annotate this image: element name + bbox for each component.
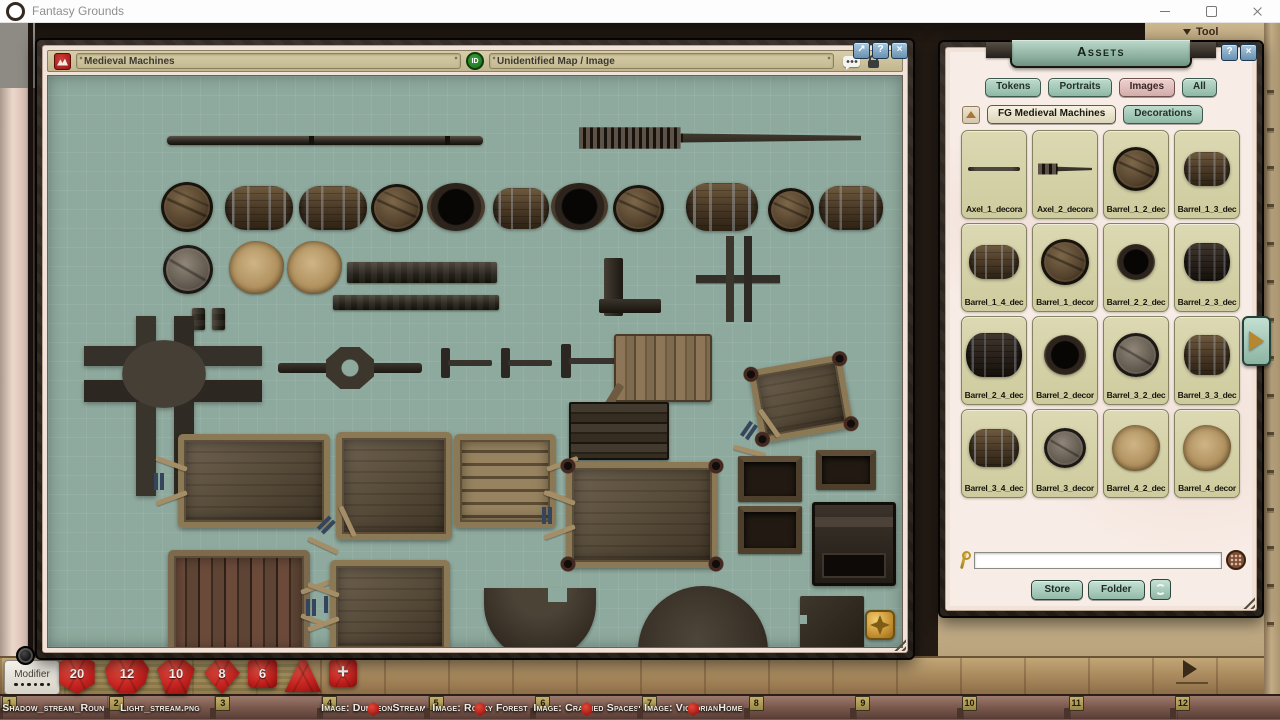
taskbar-slot[interactable]: 7Image: VictorianHome [640, 696, 747, 720]
asset-item[interactable]: Barrel_3_decor [1032, 409, 1098, 498]
slot-number: 10 [962, 696, 977, 711]
assets-window-inner: TokensPortraitsImagesAll FG Medieval Mac… [945, 47, 1257, 611]
asset-label: Barrel_2_3_dec [1178, 297, 1237, 308]
barrel-side-dark-thumbnail-icon [1184, 243, 1230, 281]
modifier-dot [40, 683, 44, 687]
image-window-icon [54, 53, 71, 70]
folder-button[interactable]: Folder [1088, 580, 1145, 600]
barrel-side-thumbnail-icon [1184, 335, 1230, 375]
compass-petal-icon [870, 621, 890, 629]
asset-item[interactable]: Barrel_2_2_dec [1103, 223, 1169, 312]
modifier-dot [27, 683, 31, 687]
modifier-reset-icon[interactable] [16, 646, 35, 665]
lock-icon[interactable] [868, 60, 879, 68]
help-button[interactable]: ? [872, 42, 889, 59]
taskbar-slot[interactable]: 4Image: DungeonStream [320, 696, 427, 720]
map-object-raft[interactable] [614, 334, 712, 402]
taskbar-slot: 9 [853, 696, 960, 720]
tool-menu-label: Tool [1196, 26, 1218, 38]
minimize-icon [1160, 11, 1170, 12]
map-object-barrel-covered[interactable] [229, 241, 284, 294]
map-window-buttons: ↗ ? × [853, 42, 908, 59]
map-object-semicircle-notch[interactable] [484, 588, 596, 648]
assets-body: TokensPortraitsImagesAll FG Medieval Mac… [950, 52, 1252, 606]
asset-item[interactable]: Barrel_2_decor [1032, 316, 1098, 405]
die-value: 10 [169, 666, 183, 681]
map-window: Medieval Machines ID Unidentified Map / … [35, 38, 915, 660]
map-window-inner: Medieval Machines ID Unidentified Map / … [42, 45, 908, 653]
asset-label: Axel_2_decora [1037, 204, 1093, 215]
barrel-top-thumbnail-icon [1113, 147, 1159, 191]
slot-number: 11 [1069, 696, 1084, 711]
map-object-crate-open[interactable] [738, 506, 802, 554]
window-controls [1142, 0, 1280, 22]
map-object-barrel-side[interactable] [225, 186, 293, 230]
asset-label: Barrel_1_2_dec [1107, 204, 1166, 215]
asset-grid: Axel_1_decoraAxel_2_decoraBarrel_1_2_dec… [961, 130, 1240, 498]
asset-item[interactable]: Barrel_1_4_dec [961, 223, 1027, 312]
map-object-barrel-side[interactable] [493, 188, 549, 229]
die-plus[interactable]: + [329, 659, 357, 687]
store-button[interactable]: Store [1031, 580, 1083, 600]
shortcut-label: Shadow_stream_Roun [0, 702, 107, 714]
map-object-cart-open[interactable] [178, 434, 330, 528]
map-object-barrel-top[interactable] [161, 182, 213, 232]
slot-number: 12 [1175, 696, 1190, 711]
barrel-covered-thumbnail-icon [1112, 425, 1160, 471]
taskbar-slot[interactable]: 1Shadow_stream_Roun [0, 696, 107, 720]
map-object-beam-h[interactable] [333, 295, 499, 310]
taskbar-slot: 10 [960, 696, 1067, 720]
help-button[interactable]: ? [1221, 44, 1238, 61]
modifier-dots [14, 683, 50, 687]
asset-label: Barrel_3_3_dec [1178, 390, 1237, 401]
map-object-barrel-top[interactable] [768, 188, 814, 232]
asset-item[interactable]: Axel_2_decora [1032, 130, 1098, 219]
taskbar-slot: 11 [1067, 696, 1174, 720]
modifier-dot [47, 683, 51, 687]
map-object-barrel-side[interactable] [819, 186, 883, 230]
map-object-cart-red[interactable] [168, 550, 310, 648]
taskbar-slot[interactable]: 5Image: Rocky Forest [427, 696, 534, 720]
assets-filters: FG Medieval MachinesDecorations [962, 105, 1203, 124]
cart-handle [303, 586, 337, 628]
map-object-crate-open[interactable] [816, 450, 876, 490]
next-page-button[interactable] [1242, 316, 1271, 366]
taskbar-slot[interactable]: 2Light_stream.png [107, 696, 214, 720]
map-object-chest[interactable] [812, 502, 896, 586]
asset-item[interactable]: Barrel_4_decor [1174, 409, 1240, 498]
die-value: 20 [70, 666, 84, 681]
map-object-disc[interactable] [638, 586, 768, 648]
assets-actions-row: Store Folder [950, 579, 1252, 600]
barrel-covered-thumbnail-icon [1183, 425, 1231, 471]
map-name-field[interactable]: Medieval Machines [76, 53, 461, 69]
chevron-down-icon [1183, 29, 1191, 35]
barrel-top-gray-thumbnail-icon [1113, 333, 1159, 377]
map-name-value: Medieval Machines [84, 56, 175, 67]
grid-dots-icon[interactable] [1226, 550, 1246, 570]
slot-number: 8 [749, 696, 764, 711]
app-logo-icon [6, 2, 25, 21]
close-icon [1252, 6, 1263, 17]
assets-window-buttons: ? × [1221, 44, 1257, 61]
asset-item[interactable]: Barrel_3_3_dec [1174, 316, 1240, 405]
map-object-cross-thin[interactable] [696, 236, 780, 322]
assets-title-ribbon: Assets [1010, 40, 1192, 68]
asset-item[interactable]: Barrel_1_2_dec [1103, 130, 1169, 219]
modifier-box[interactable]: Modifier [4, 660, 60, 695]
map-object-beam-h[interactable] [347, 262, 497, 283]
barrel-top-gray-thumbnail-icon [1044, 428, 1086, 468]
asset-item[interactable]: Barrel_1_3_dec [1174, 130, 1240, 219]
asset-label: Barrel_1_decor [1036, 297, 1094, 308]
barrel-open-thumbnail-icon [1044, 335, 1086, 375]
modifier-dot [14, 683, 18, 687]
desktop-parchment-area [938, 612, 1264, 660]
refresh-button[interactable] [1150, 579, 1171, 600]
cart-handle [539, 494, 573, 536]
close-window-button[interactable]: × [891, 42, 908, 59]
filter-buttons: FG Medieval MachinesDecorations [987, 105, 1203, 124]
asset-item[interactable]: Barrel_1_decor [1032, 223, 1098, 312]
id-badge: ID [466, 52, 484, 70]
map-object-axel2[interactable] [579, 124, 861, 152]
maximize-window-button[interactable]: ↗ [853, 42, 870, 59]
close-button[interactable] [1234, 0, 1280, 22]
asset-item[interactable]: Barrel_3_4_dec [961, 409, 1027, 498]
close-window-button[interactable]: × [1240, 44, 1257, 61]
asset-item[interactable]: Barrel_4_2_dec [1103, 409, 1169, 498]
map-object-cart-wheels[interactable] [748, 354, 853, 443]
minimize-button[interactable] [1142, 0, 1188, 22]
map-object-cart-open[interactable] [336, 432, 452, 540]
map-object-cart-wheels[interactable] [566, 462, 718, 568]
die-value: 6 [259, 666, 266, 681]
asset-label: Barrel_2_decor [1036, 390, 1094, 401]
sidebar-expand-arrow[interactable] [1183, 660, 1197, 678]
map-canvas[interactable] [47, 75, 903, 648]
taskbar-slot[interactable]: 6Image: Crashed Spacesh [533, 696, 640, 720]
restore-icon [1206, 6, 1217, 17]
map-object-t-tool[interactable] [440, 348, 492, 378]
barrel-side-dark-thumbnail-icon [966, 333, 1022, 377]
tab-tokens[interactable]: Tokens [985, 78, 1041, 97]
collapse-arrow-button[interactable] [962, 106, 980, 124]
barrel-open-thumbnail-icon [1117, 244, 1155, 280]
slot-number: 3 [215, 696, 230, 711]
asset-label: Barrel_3_decor [1036, 483, 1094, 494]
asset-label: Barrel_4_decor [1178, 483, 1236, 494]
sidebar-arrow-underline [1176, 682, 1208, 684]
app-title: Fantasy Grounds [32, 4, 124, 18]
os-titlebar: Fantasy Grounds [0, 0, 1280, 23]
map-object-barrel-covered[interactable] [287, 241, 342, 294]
restore-button[interactable] [1188, 0, 1234, 22]
shortcut-label: Light_stream.png [107, 702, 214, 714]
asset-label: Barrel_4_2_dec [1107, 483, 1166, 494]
cart-handle [151, 460, 185, 502]
map-object-cart-open[interactable] [330, 560, 450, 648]
asset-search-input[interactable] [974, 552, 1222, 569]
modifier-dot [34, 683, 38, 687]
taskbar-slot: 12 [1173, 696, 1280, 720]
search-needle-icon [956, 551, 970, 570]
pan-compass-button[interactable] [865, 610, 895, 640]
map-object-rod[interactable] [167, 136, 483, 145]
barrel-side-thumbnail-icon [969, 245, 1019, 279]
map-type-field[interactable]: Unidentified Map / Image [489, 53, 834, 69]
map-object-barrel-side[interactable] [686, 183, 758, 231]
desktop-left-edge [0, 22, 35, 696]
asset-item[interactable]: Barrel_2_3_dec [1174, 223, 1240, 312]
asset-search-row [956, 550, 1246, 570]
map-object-barrel-side[interactable] [299, 186, 367, 230]
fantasy-grounds-app: Fantasy Grounds Tool Modifier 20121086+ … [0, 0, 1280, 720]
map-object-barrel-open[interactable] [551, 183, 608, 230]
map-object-hub-rod[interactable] [278, 348, 422, 388]
tab-portraits[interactable]: Portraits [1048, 78, 1111, 97]
asset-item[interactable]: Axel_1_decora [961, 130, 1027, 219]
map-object-barrel-top[interactable] [371, 184, 423, 232]
asset-label: Barrel_1_4_dec [965, 297, 1024, 308]
map-object-t-tool[interactable] [500, 348, 552, 378]
map-object-slab[interactable] [800, 596, 864, 648]
die-value: 12 [120, 666, 134, 681]
map-object-barrel-top[interactable] [613, 185, 664, 232]
barrel-side-thumbnail-icon [969, 429, 1019, 467]
tab-all[interactable]: All [1182, 78, 1217, 97]
sidebar-edge-strip [1264, 22, 1280, 720]
tab-images[interactable]: Images [1119, 78, 1175, 97]
modifier-dot [21, 683, 25, 687]
map-type-value: Unidentified Map / Image [497, 56, 615, 67]
map-object-barrel-top-gray[interactable] [163, 245, 213, 294]
filter-decorations[interactable]: Decorations [1123, 105, 1203, 124]
die-value: 8 [218, 666, 225, 681]
slot-number: 9 [855, 696, 870, 711]
asset-label: Barrel_2_2_dec [1107, 297, 1166, 308]
map-object-t-tool[interactable] [560, 344, 618, 378]
cart-handle [731, 408, 783, 462]
axel-thin-thumbnail-icon [968, 167, 1020, 171]
map-titlebar[interactable]: Medieval Machines ID Unidentified Map / … [47, 50, 903, 72]
asset-label: Barrel_2_4_dec [965, 390, 1024, 401]
barrel-top-thumbnail-icon [1041, 239, 1089, 285]
asset-label: Axel_1_decora [966, 204, 1022, 215]
die-value: + [337, 662, 349, 682]
map-object-crate-open[interactable] [738, 456, 802, 502]
asset-label: Barrel_1_3_dec [1178, 204, 1237, 215]
assets-window: TokensPortraitsImagesAll FG Medieval Mac… [938, 40, 1264, 618]
filter-fg-medieval-machines[interactable]: FG Medieval Machines [987, 105, 1116, 124]
asset-item[interactable]: Barrel_2_4_dec [961, 316, 1027, 405]
asset-item[interactable]: Barrel_3_2_dec [1103, 316, 1169, 405]
die-d6[interactable]: 6 [248, 659, 277, 688]
barrel-side-thumbnail-icon [1184, 152, 1230, 186]
taskbar-slot: 3 [213, 696, 320, 720]
asset-label: Barrel_3_4_dec [965, 483, 1024, 494]
map-object-barrel-open[interactable] [427, 183, 485, 231]
asset-label: Barrel_3_2_dec [1107, 390, 1166, 401]
tool-menu[interactable]: Tool [1183, 26, 1218, 38]
map-object-lbeam[interactable] [599, 258, 661, 316]
modifier-label: Modifier [14, 669, 50, 680]
assets-tabs: TokensPortraitsImagesAll [950, 78, 1252, 97]
taskbar-slot: 8 [747, 696, 854, 720]
axel2-thumbnail-icon [1038, 162, 1092, 176]
hotkey-taskbar: 1Shadow_stream_Roun2Light_stream.png34Im… [0, 694, 1280, 720]
map-object-plank-pile[interactable] [569, 402, 669, 460]
